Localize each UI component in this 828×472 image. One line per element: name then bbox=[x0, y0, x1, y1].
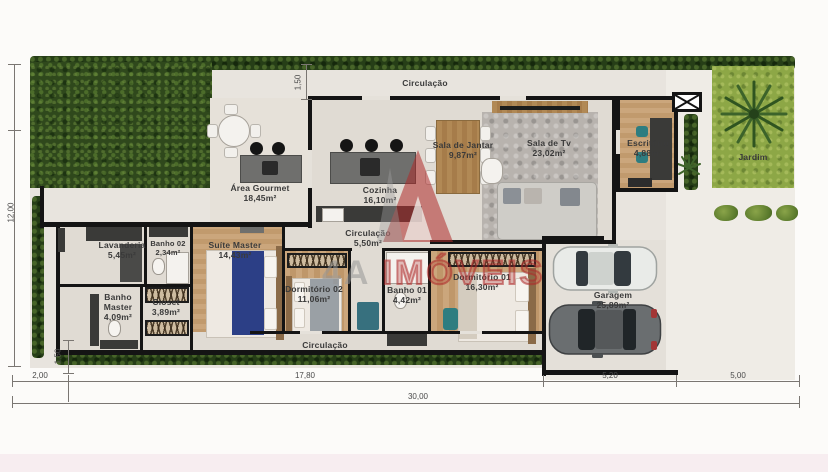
wall bbox=[40, 222, 310, 227]
dim-total-width: 30,00 bbox=[394, 392, 442, 401]
cooktop-icon bbox=[360, 158, 380, 176]
label-circulacao-fundo: Circulação bbox=[280, 340, 370, 350]
dim-tick bbox=[8, 130, 21, 131]
door-opening bbox=[300, 331, 322, 334]
dim-segment-3: 5,20 bbox=[588, 371, 632, 380]
label-area-gourmet: Área Gourmet 18,45m² bbox=[215, 183, 305, 203]
wall bbox=[250, 331, 542, 334]
bottom-tint-band bbox=[0, 454, 828, 472]
room-area: 23,02m² bbox=[505, 148, 593, 158]
dim-segment-1: 2,00 bbox=[20, 371, 60, 380]
chair bbox=[207, 124, 218, 138]
chair bbox=[425, 126, 436, 141]
room-area: 4,88m² bbox=[617, 148, 679, 158]
room-area: 3,89m² bbox=[140, 307, 192, 317]
room-area: 25,89m² bbox=[578, 300, 648, 310]
wall bbox=[282, 222, 285, 333]
watermark-name: IMÓVEIS bbox=[383, 254, 546, 292]
gourmet-round-table bbox=[218, 115, 250, 147]
door-opening bbox=[500, 96, 526, 100]
kitchen-sink bbox=[322, 208, 344, 222]
label-suite-master: Suíte Master 14,43m² bbox=[192, 240, 278, 260]
entry-door bbox=[58, 228, 65, 252]
room-area: 14,43m² bbox=[192, 250, 278, 260]
dim-tick bbox=[301, 99, 312, 100]
pillow bbox=[294, 308, 305, 328]
palm-tree-icon bbox=[714, 70, 794, 154]
office-cabinet bbox=[628, 178, 652, 187]
car-white bbox=[552, 242, 658, 296]
grill-icon bbox=[262, 161, 278, 175]
toilet bbox=[108, 320, 121, 337]
label-banho02: Banho 02 2,34m² bbox=[141, 240, 195, 258]
label-closet: Closet 3,89m² bbox=[140, 297, 192, 317]
bath01-vanity bbox=[387, 334, 427, 346]
dim-segment-2: 17,80 bbox=[283, 371, 327, 380]
hall-runner-rug bbox=[357, 302, 379, 330]
stool bbox=[340, 139, 353, 152]
master-bath-shower-ledge bbox=[100, 340, 138, 349]
chair bbox=[224, 147, 238, 158]
chair bbox=[250, 124, 261, 138]
wall bbox=[282, 248, 352, 251]
bush bbox=[714, 205, 738, 221]
room-name: Sala de Tv bbox=[505, 138, 593, 148]
wall bbox=[542, 236, 604, 240]
potted-plant-icon bbox=[676, 150, 702, 184]
door-opening bbox=[308, 150, 312, 188]
dim-tick bbox=[63, 340, 74, 341]
window-x-icon bbox=[672, 92, 702, 112]
label-garagem: Garagem 25,89m² bbox=[578, 290, 648, 310]
room-name: Escritório bbox=[617, 138, 679, 148]
room-name: Circulação bbox=[280, 340, 370, 350]
room-name: Closet bbox=[140, 297, 192, 307]
suite-bed-blanket bbox=[232, 251, 264, 335]
door-opening bbox=[460, 331, 482, 334]
dim-segment-4: 5,00 bbox=[716, 371, 760, 380]
stool bbox=[250, 142, 263, 155]
side-table bbox=[481, 158, 503, 184]
dim-tick bbox=[68, 375, 69, 402]
dim-tick bbox=[63, 373, 74, 374]
sofa-cushion bbox=[524, 188, 542, 204]
room-name: Banho Master bbox=[95, 292, 141, 312]
wall bbox=[428, 248, 542, 251]
watermark-text: 4A IMÓVEIS bbox=[322, 254, 545, 293]
room-area: 11,06m² bbox=[283, 294, 345, 304]
chair bbox=[224, 104, 238, 115]
dim-line-corridor bbox=[68, 340, 69, 374]
bush bbox=[776, 205, 798, 221]
wall bbox=[382, 248, 432, 251]
label-sala-tv: Sala de Tv 23,02m² bbox=[505, 138, 593, 158]
floor-plan-canvas: Circulação Área Gourmet 18,45m² Cozinha … bbox=[0, 0, 828, 472]
room-area: 2,34m² bbox=[141, 249, 195, 258]
wall bbox=[56, 350, 544, 355]
dim-tick bbox=[799, 396, 800, 408]
dim-tick bbox=[8, 366, 21, 367]
bath02-vanity bbox=[149, 227, 188, 237]
wall bbox=[616, 96, 676, 100]
stool bbox=[272, 142, 285, 155]
door-opening bbox=[362, 96, 390, 100]
laundry-counter bbox=[86, 227, 142, 241]
sofa-cushion bbox=[560, 188, 580, 206]
dim-top-setback: 1,50 bbox=[294, 63, 303, 103]
dim-tick bbox=[301, 64, 312, 65]
room-name: Jardim bbox=[718, 152, 788, 162]
pillow bbox=[264, 308, 277, 330]
stool bbox=[365, 139, 378, 152]
room-area: 4,09m² bbox=[95, 312, 141, 322]
wall bbox=[612, 96, 616, 244]
room-name: Garagem bbox=[578, 290, 648, 300]
room-name: Sala de Jantar bbox=[415, 140, 511, 150]
wall bbox=[58, 284, 193, 287]
label-escritorio: Escritório 4,88m² bbox=[617, 138, 679, 158]
toilet bbox=[152, 258, 165, 275]
dim-tick bbox=[799, 375, 800, 387]
dim-line-top-setback bbox=[306, 64, 307, 100]
watermark-prefix: 4A bbox=[322, 254, 370, 292]
closet-hanger-rack bbox=[145, 320, 189, 336]
wall bbox=[616, 188, 678, 192]
label-sala-jantar: Sala de Jantar 9,87m² bbox=[415, 140, 511, 160]
bush bbox=[745, 205, 772, 221]
label-circulacao-top: Circulação bbox=[380, 78, 470, 88]
dim-tick bbox=[543, 375, 544, 387]
label-banho-master: Banho Master 4,09m² bbox=[95, 292, 141, 322]
dim-left-total: 12,00 bbox=[7, 193, 16, 233]
dim-line-total bbox=[12, 403, 800, 404]
stool bbox=[390, 139, 403, 152]
office-chair bbox=[636, 126, 648, 137]
room-area: 18,45m² bbox=[215, 193, 305, 203]
backyard-grass bbox=[30, 62, 212, 188]
dim-tick bbox=[12, 375, 13, 387]
dim-tick bbox=[676, 375, 677, 387]
dim-line-bottom bbox=[12, 381, 800, 382]
dim-tick bbox=[12, 396, 13, 408]
wall bbox=[308, 96, 620, 100]
sofa-cushion bbox=[503, 188, 521, 204]
label-jardim: Jardim bbox=[718, 152, 788, 162]
dim-tick bbox=[8, 64, 21, 65]
room-area: 4,42m² bbox=[381, 295, 433, 305]
room-name: Circulação bbox=[380, 78, 470, 88]
tv-icon bbox=[500, 106, 580, 110]
room-area: 9,87m² bbox=[415, 150, 511, 160]
room-name: Área Gourmet bbox=[215, 183, 305, 193]
room-name: Suíte Master bbox=[192, 240, 278, 250]
wall bbox=[430, 240, 616, 244]
accent-chair bbox=[443, 308, 458, 330]
chair bbox=[480, 126, 491, 141]
